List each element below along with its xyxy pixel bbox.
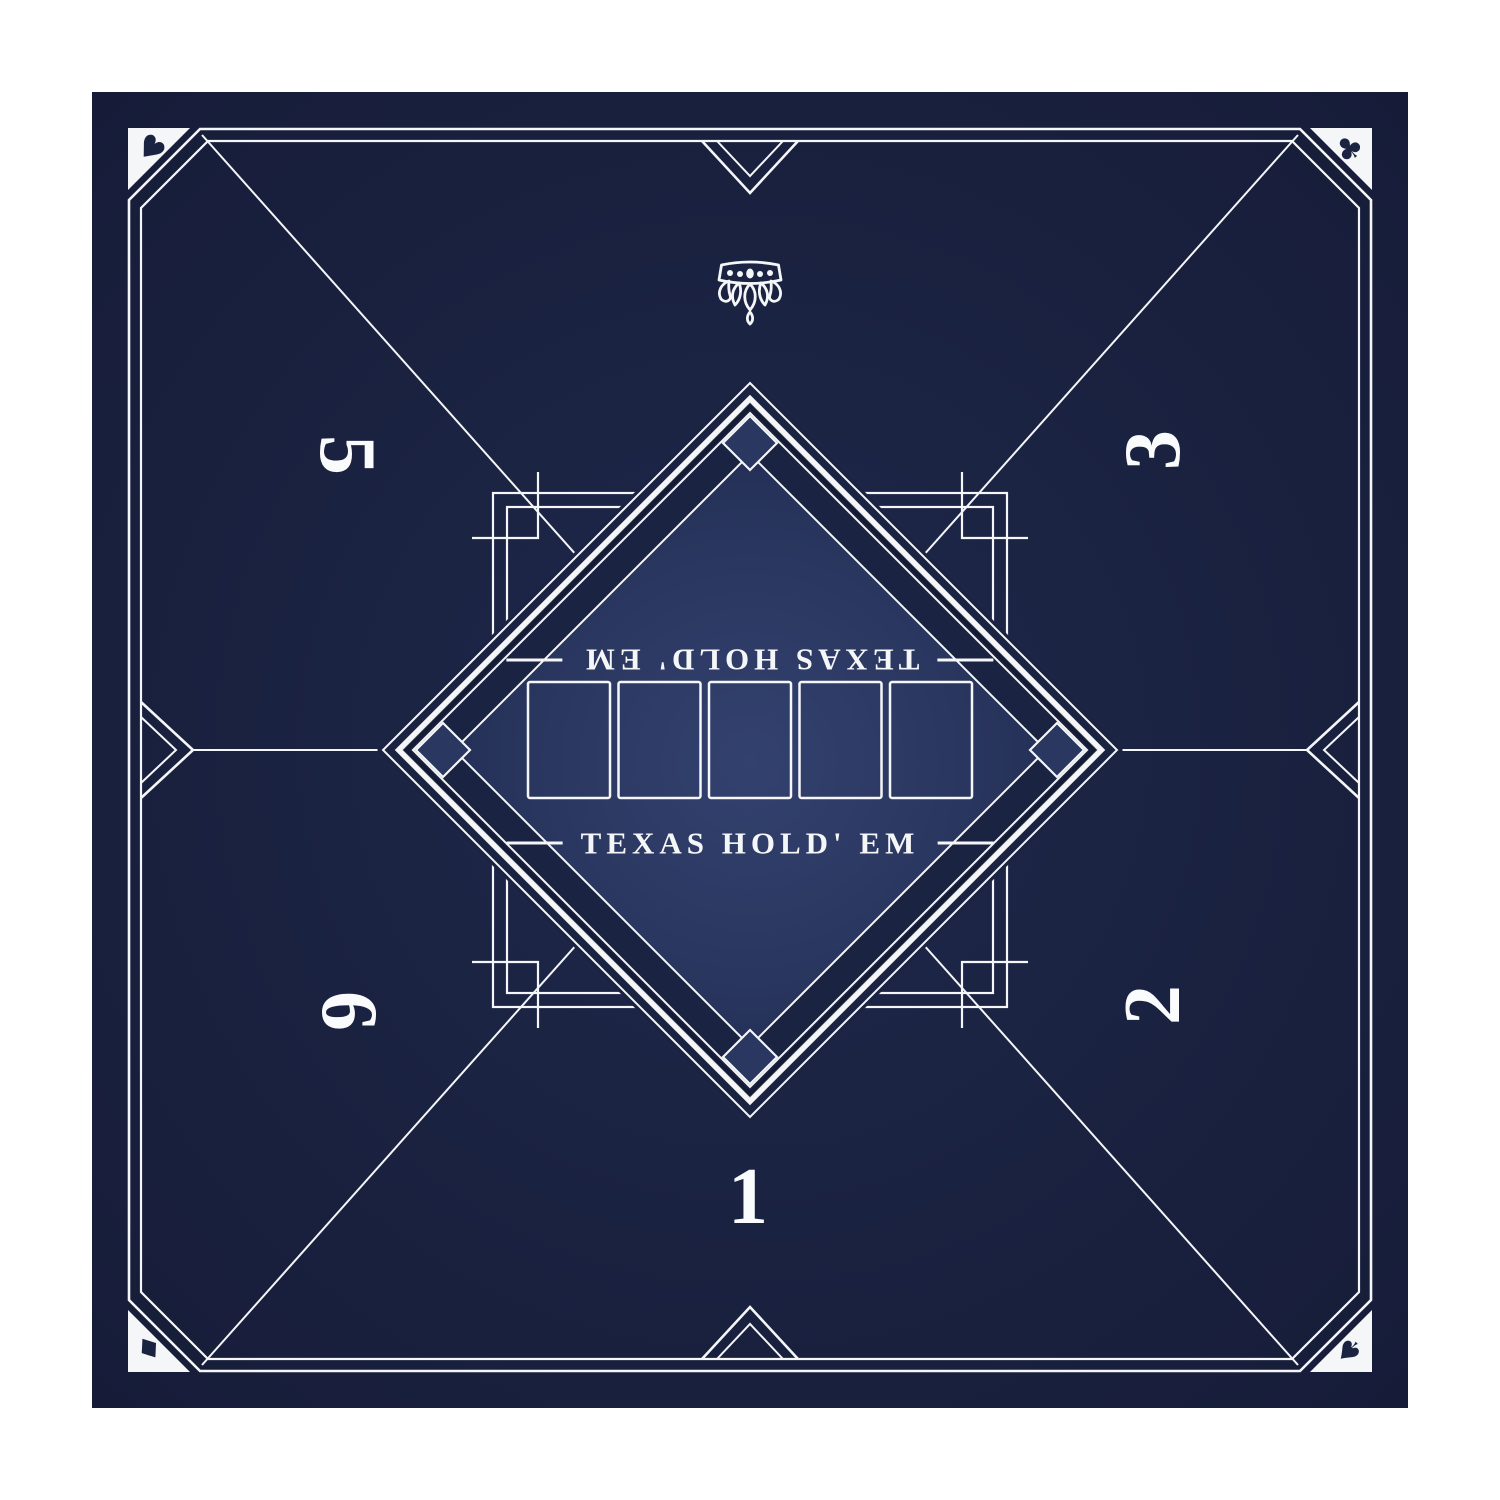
title-dash [937, 659, 993, 662]
corner-step-top-right [962, 472, 1028, 538]
seat-number-2: 2 [1113, 985, 1193, 1025]
title-dash [507, 842, 563, 845]
notch-left [141, 702, 193, 798]
notch-left-inner [141, 717, 176, 783]
notch-right [1307, 702, 1359, 798]
title-bottom: TEXAS HOLD' EM [507, 828, 994, 859]
notch-right-inner [1324, 717, 1359, 783]
notch-bottom [702, 1307, 798, 1359]
corner-step-bottom-left [472, 962, 538, 1028]
notch-bottom-inner [717, 1324, 783, 1359]
title-dash [937, 842, 993, 845]
game-title: TEXAS HOLD' EM [581, 828, 920, 859]
notch-top-inner [717, 141, 783, 176]
seat-number-5: 5 [307, 435, 387, 475]
seat-number-3: 3 [1113, 430, 1193, 470]
game-title: TEXAS HOLD' EM [581, 645, 920, 676]
diamond-center-panel [454, 454, 1046, 1046]
corner-step-top-left [472, 472, 538, 538]
seat-number-6: 6 [309, 991, 389, 1031]
crown-icon [719, 262, 781, 324]
corner-step-bottom-right [962, 962, 1028, 1028]
title-top-rotated: TEXAS HOLD' EM [507, 645, 994, 676]
poker-mat-image: ♥ ♣ ♦ ♠ 5 3 6 2 1 TEXAS HOLD' EM TEXAS H… [0, 0, 1500, 1500]
seat-number-1: 1 [728, 1157, 768, 1237]
title-dash [507, 659, 563, 662]
notch-top [702, 141, 798, 193]
poker-mat: ♥ ♣ ♦ ♠ 5 3 6 2 1 TEXAS HOLD' EM TEXAS H… [92, 92, 1408, 1408]
